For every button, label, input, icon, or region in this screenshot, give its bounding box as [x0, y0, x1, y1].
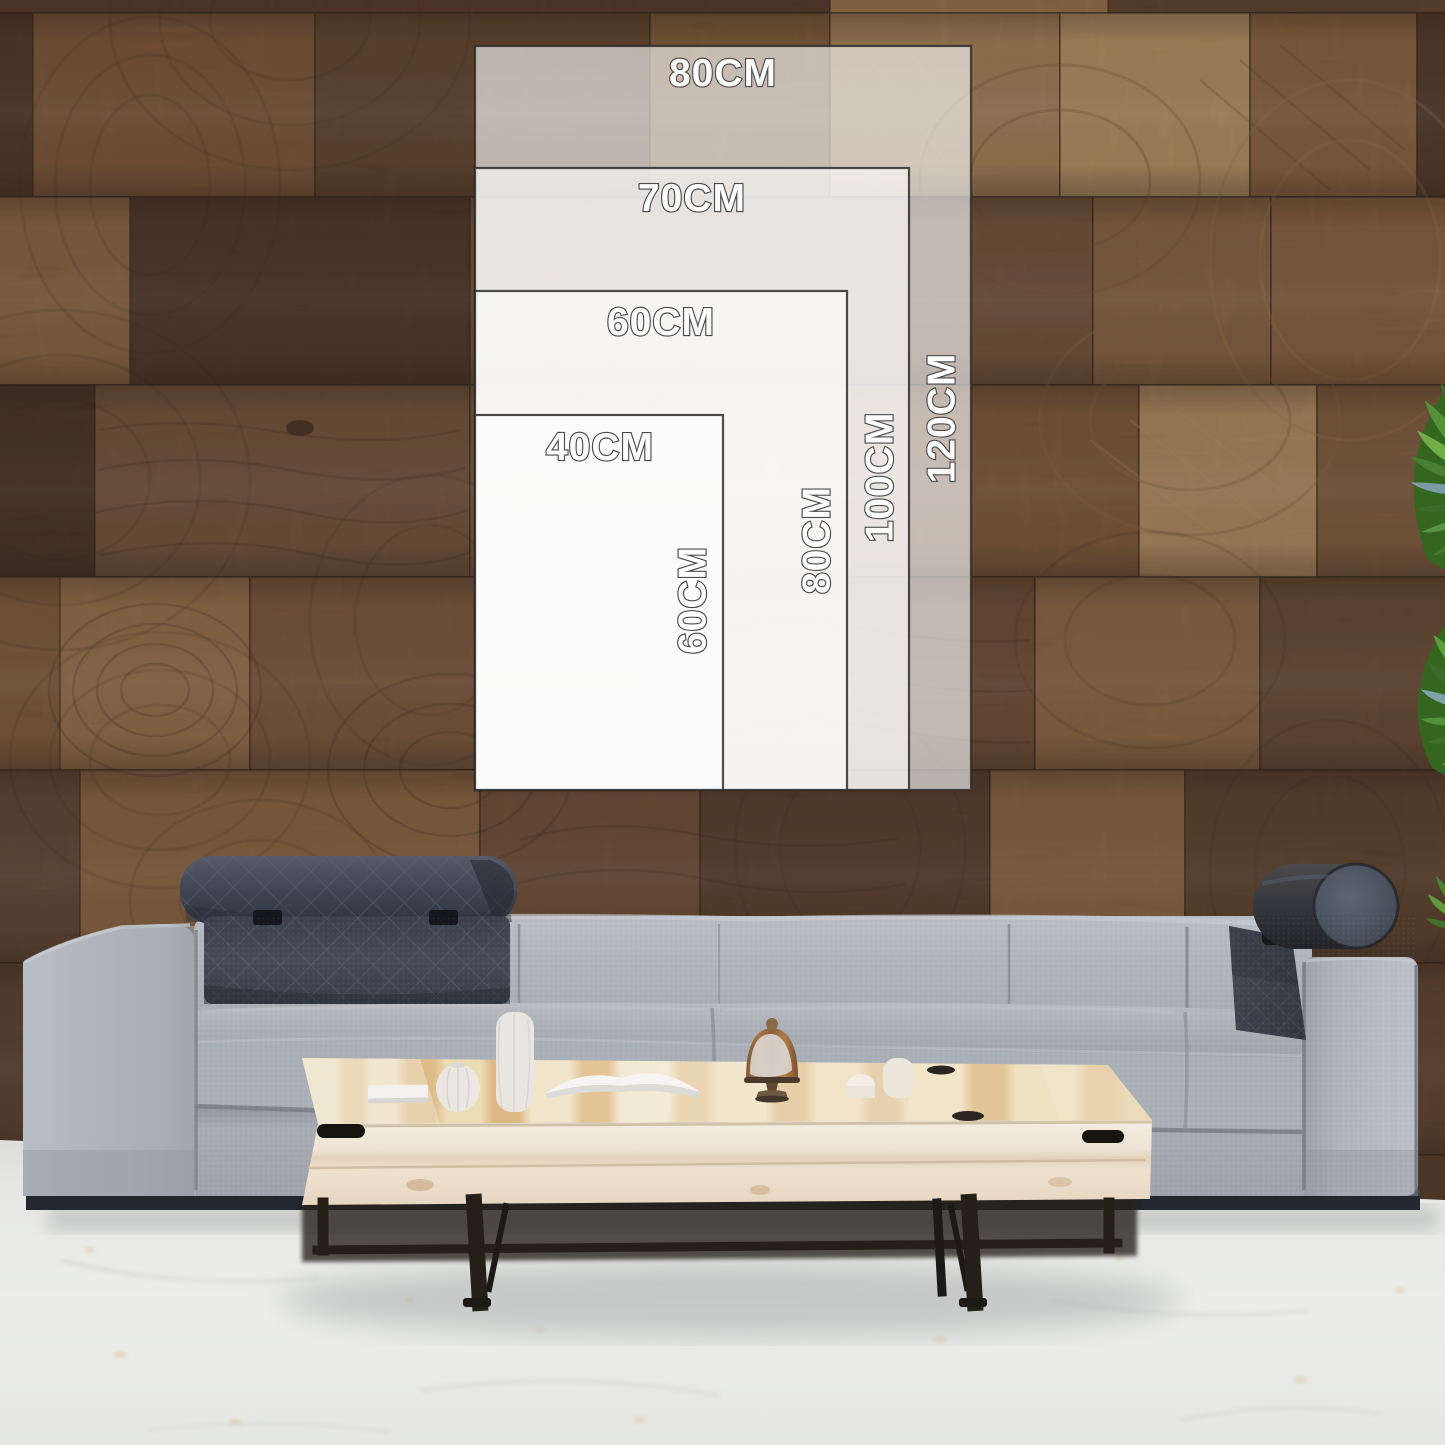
svg-text:80CM: 80CM: [669, 52, 777, 95]
svg-text:60CM: 60CM: [672, 546, 715, 654]
svg-text:40CM: 40CM: [546, 426, 654, 469]
svg-text:60CM: 60CM: [607, 301, 715, 344]
svg-text:120CM: 120CM: [921, 353, 964, 484]
svg-text:80CM: 80CM: [796, 486, 839, 594]
svg-text:100CM: 100CM: [859, 412, 902, 543]
svg-text:70CM: 70CM: [638, 177, 746, 220]
